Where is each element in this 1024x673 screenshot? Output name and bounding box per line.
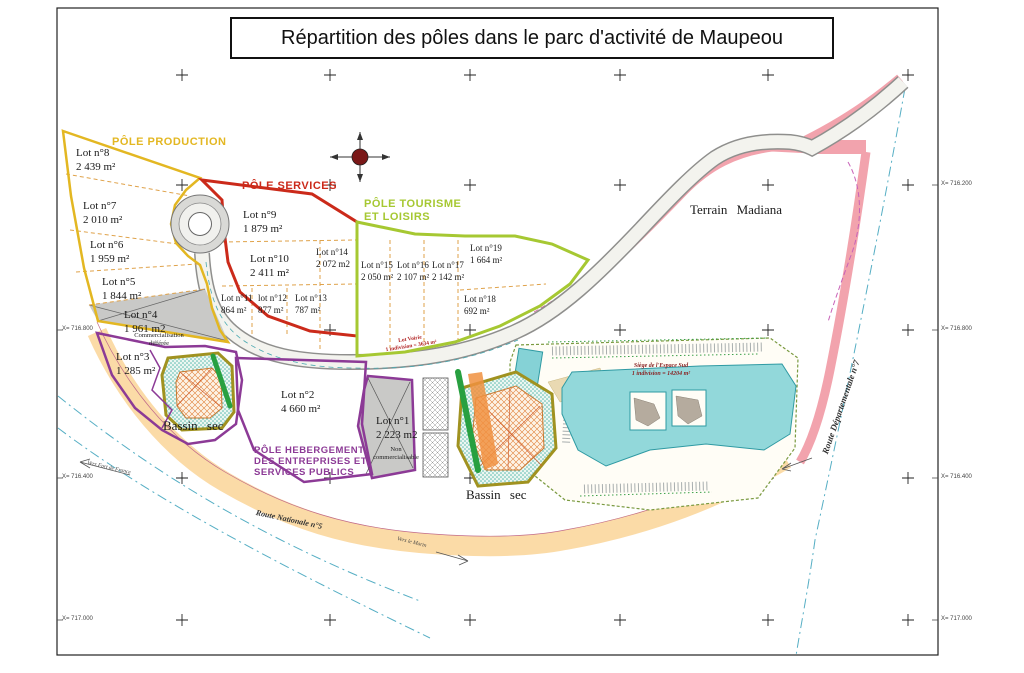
lot-9-label: Lot n°91 879 m² (243, 208, 282, 237)
lot-11-label: Lot n°11864 m² (221, 293, 253, 316)
coord-left-3: X= 717.000 (62, 616, 93, 624)
siege-espace-sud-annotation: Siège de l'Espace Sud 1 indivision = 142… (616, 363, 706, 378)
lot-8-label: Lot n°82 439 m² (76, 146, 115, 175)
lot-7-label: Lot n°72 010 m² (83, 199, 122, 228)
lot-14-label: Lot n°142 072 m2 (316, 247, 350, 270)
coord-right-1: X= 716.200 (941, 181, 972, 189)
lot-3-label: Lot n°31 285 m² (116, 350, 155, 379)
coord-right-2: X= 716.800 (941, 326, 972, 334)
lot-1-label: Lot n°12 223 m2 (376, 414, 418, 443)
plan-canvas: Répartition des pôles dans le parc d'act… (0, 0, 1024, 673)
lot-10-label: Lot n°102 411 m² (250, 252, 289, 281)
terrain-madiana-label: Terrain Madiana (690, 202, 782, 219)
lot-1-note: Noncommercialisable (370, 446, 422, 462)
compass-marker (330, 132, 390, 182)
zone-label-hebergement: PÔLE HEBERGEMENT DES ENTREPRISES ET SERV… (254, 446, 367, 479)
zone-label-services: PÔLE SERVICES (242, 180, 337, 193)
coord-right-4: X= 717.000 (941, 616, 972, 624)
zone-label-production: PÔLE PRODUCTION (112, 136, 226, 149)
lot-4-note: Commercialisationdifférée (118, 332, 200, 348)
lot-17-label: Lot n°172 142 m² (432, 260, 464, 283)
lot-19-label: Lot n°191 664 m² (470, 243, 502, 266)
coord-left-2: X= 716.400 (62, 474, 93, 482)
coord-right-3: X= 716.400 (941, 474, 972, 482)
lot-2-label: Lot n°24 660 m² (281, 388, 320, 417)
bassin-sec-east-label: Bassin sec (466, 487, 527, 504)
lot-13-label: Lot n°13787 m² (295, 293, 327, 316)
title-box: Répartition des pôles dans le parc d'act… (230, 17, 834, 59)
lot-16-label: Lot n°162 107 m² (397, 260, 429, 283)
roundabout (171, 195, 229, 253)
main-road (202, 82, 903, 368)
lot-6-label: Lot n°61 959 m² (90, 238, 129, 267)
coord-left-1: X= 716.800 (62, 326, 93, 334)
existing-buildings (423, 378, 448, 477)
lot-12-label: lot n°12877 m² (258, 293, 287, 316)
page-title: Répartition des pôles dans le parc d'act… (281, 27, 783, 50)
lot-5-label: Lot n°51 844 m² (102, 275, 141, 304)
bassin-sec-west-label: Bassin sec (163, 418, 224, 435)
lot-18-label: Lot n°18692 m² (464, 294, 496, 317)
zone-label-tourisme: PÔLE TOURISME ET LOISIRS (364, 198, 461, 223)
lot-15-label: Lot n°152 050 m² (361, 260, 393, 283)
